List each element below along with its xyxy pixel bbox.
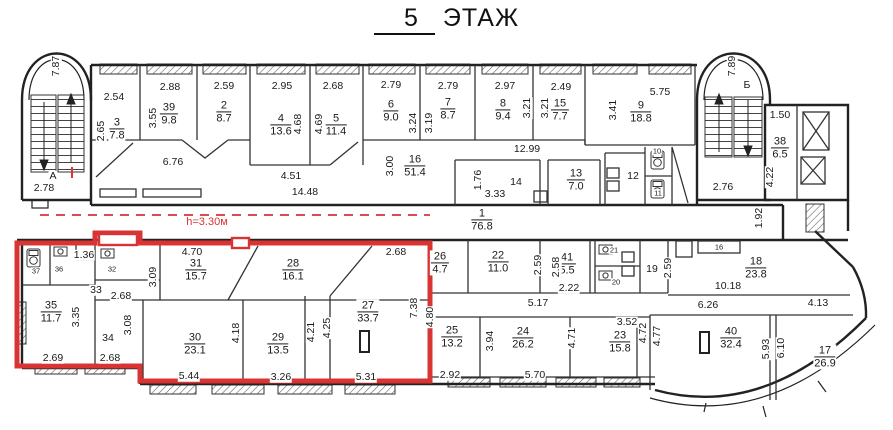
- room-label-29: 2913.5: [266, 331, 289, 356]
- dim-label: 3.00: [385, 155, 396, 177]
- room-label-8: 89.4: [494, 97, 511, 122]
- dim-label: 7.38: [409, 297, 420, 319]
- small-label: 16: [714, 243, 724, 251]
- dim-label: 2.59: [533, 254, 544, 276]
- room-label-38: 386.5: [770, 135, 790, 160]
- dim-label: А: [48, 171, 57, 182]
- dim-label: 7.89: [727, 55, 738, 77]
- dim-label: 2.58: [551, 256, 562, 278]
- dim-label: 33: [89, 285, 103, 296]
- dim-label: 5.75: [649, 87, 671, 98]
- dim-label: 5.93: [761, 338, 772, 360]
- room-label-22: 2211.0: [487, 249, 510, 274]
- dim-label: 6.10: [776, 337, 787, 359]
- dim-label: 4.77: [652, 325, 663, 347]
- dim-label: 4.71: [567, 327, 578, 349]
- dim-label: 2.59: [213, 81, 235, 92]
- dim-label: 2.59: [663, 257, 674, 279]
- dim-label: 2.68: [99, 353, 121, 364]
- dim-label: 5.17: [527, 298, 549, 309]
- dim-label: 2.92: [439, 370, 461, 381]
- dim-label: 3.52: [616, 317, 638, 328]
- room-label-24: 2426.2: [511, 325, 534, 350]
- dim-label: 2.69: [42, 353, 64, 364]
- dim-label: 2.22: [558, 283, 580, 294]
- room-label-28: 2816.1: [281, 257, 304, 282]
- room-label-2: 28.7: [215, 99, 232, 124]
- dim-label: 1.50: [769, 110, 791, 121]
- dim-label: 3.26: [270, 372, 292, 383]
- dim-label: 2.78: [33, 183, 55, 194]
- dim-label: 3.55: [148, 107, 159, 129]
- room-label-25: 2513.2: [440, 324, 463, 349]
- room-label-6: 69.0: [382, 98, 399, 123]
- room-label-35: 3511.7: [40, 299, 63, 324]
- dim-label: 4.72: [638, 322, 649, 344]
- room-label-9: 918.8: [629, 99, 652, 124]
- room-label-16: 1651.4: [403, 153, 426, 178]
- floor-plan: 5ЭТАЖ: [0, 0, 893, 430]
- room-label-15: 157.7: [550, 97, 570, 122]
- dim-label: 4.22: [765, 166, 776, 188]
- dim-label: 3.41: [608, 99, 619, 121]
- room-label-26: 264.7: [430, 250, 450, 275]
- dim-label: 3.94: [485, 330, 496, 352]
- small-label: 20: [611, 278, 621, 286]
- room-label-13: 137.0: [566, 167, 586, 192]
- dim-label: 4.80: [425, 306, 436, 328]
- small-label: 37: [31, 267, 41, 275]
- page-title: 5ЭТАЖ: [0, 4, 893, 33]
- dim-label: 6.26: [697, 300, 719, 311]
- dim-label: 4.13: [807, 298, 829, 309]
- dim-label: 3.19: [424, 112, 435, 134]
- dim-label: 2.97: [494, 81, 516, 92]
- dim-label: 2.79: [437, 81, 459, 92]
- room-label-7: 78.7: [439, 96, 456, 121]
- dim-label: 2.65: [96, 120, 107, 142]
- floor-number: 5: [374, 4, 435, 35]
- room-label-5: 511.4: [325, 112, 348, 137]
- dim-label: 1.76: [473, 169, 484, 191]
- small-label: 11: [653, 189, 663, 197]
- dim-label: 34: [101, 333, 115, 344]
- room-label-18: 1823.8: [744, 255, 767, 280]
- dim-label: 2.68: [385, 247, 407, 258]
- dim-label: 6.76: [162, 157, 184, 168]
- dim-label: 3.24: [408, 112, 419, 134]
- dim-label: 2.88: [159, 82, 181, 93]
- dim-label: 4.68: [293, 113, 304, 135]
- small-label: 21: [609, 246, 619, 254]
- dim-label: 4.69: [314, 113, 325, 135]
- dim-label: 10.18: [714, 281, 742, 292]
- dim-label: 2.79: [380, 80, 402, 91]
- plan-labels: 37.8399.828.7413.6511.469.078.789.4157.7…: [0, 0, 893, 430]
- dim-label: 2.68: [110, 291, 132, 302]
- dim-label: 4.51: [280, 171, 302, 182]
- dim-label: 5.70: [524, 370, 546, 381]
- dim-label: 12.99: [513, 144, 541, 155]
- room-label-30: 3023.1: [183, 331, 206, 356]
- floor-word: ЭТАЖ: [443, 4, 519, 32]
- room-label-3: 37.8: [108, 116, 125, 141]
- dim-label: 4.21: [306, 321, 317, 343]
- dim-label: 12: [626, 171, 640, 182]
- small-label: 32: [107, 265, 117, 273]
- dim-label: 4.18: [231, 322, 242, 344]
- dim-label: 2.49: [550, 82, 572, 93]
- dim-label: 3.08: [123, 314, 134, 336]
- room-label-40: 4032.4: [719, 325, 742, 350]
- dim-label: 5.44: [178, 371, 200, 382]
- dim-label: 2.95: [271, 81, 293, 92]
- room-label-1: 176.8: [470, 207, 493, 232]
- dim-label: Б: [743, 80, 752, 91]
- room-label-27: 2733.7: [356, 299, 379, 324]
- dim-label: 4.70: [181, 247, 203, 258]
- dim-label: 3.21: [540, 97, 551, 119]
- dim-label: 2.54: [103, 92, 125, 103]
- dim-label: 4.25: [322, 317, 333, 339]
- dim-label: 5.31: [355, 372, 377, 383]
- dim-label: 3.33: [484, 189, 506, 200]
- room-label-17: 1726.9: [813, 344, 836, 369]
- dim-label: 7.87: [51, 55, 62, 77]
- dim-label: 2.76: [712, 182, 734, 193]
- room-label-39: 399.8: [159, 101, 179, 126]
- dim-label: 1.36: [73, 250, 95, 261]
- dim-label: 3.09: [148, 266, 159, 288]
- dim-label: 14.48: [291, 187, 319, 198]
- dim-label: 14: [509, 177, 523, 188]
- dim-label: 1.92: [754, 207, 765, 229]
- room-label-31: 3115.7: [184, 257, 207, 282]
- small-label: 10: [652, 147, 662, 155]
- room-label-23: 2315.8: [608, 329, 631, 354]
- dim-label: 3.21: [522, 97, 533, 119]
- small-label: 36: [54, 265, 64, 273]
- dim-label: 19: [645, 264, 659, 275]
- dim-label: 3.35: [71, 306, 82, 328]
- room-label-4: 413.6: [269, 112, 292, 137]
- dim-label: 2.68: [322, 81, 344, 92]
